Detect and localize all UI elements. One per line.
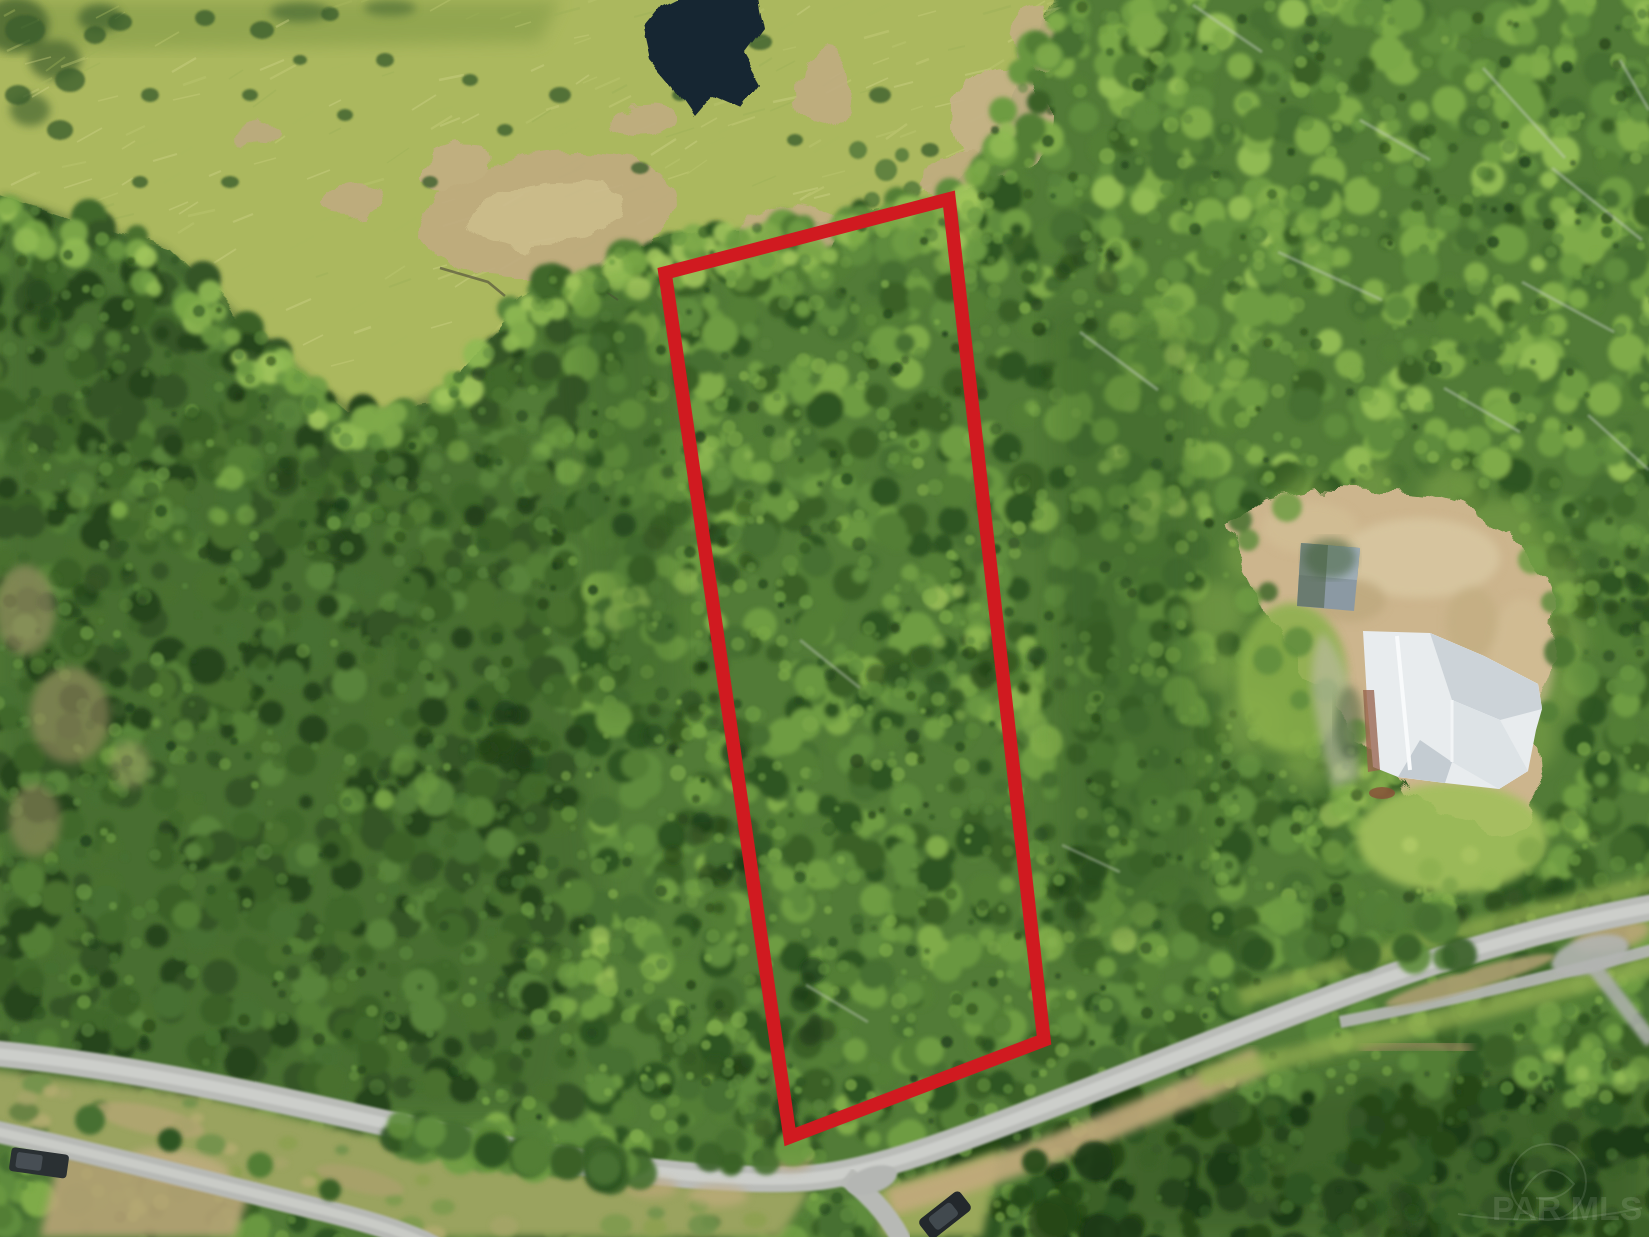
svg-text:PAR MLS: PAR MLS (1492, 1189, 1642, 1227)
